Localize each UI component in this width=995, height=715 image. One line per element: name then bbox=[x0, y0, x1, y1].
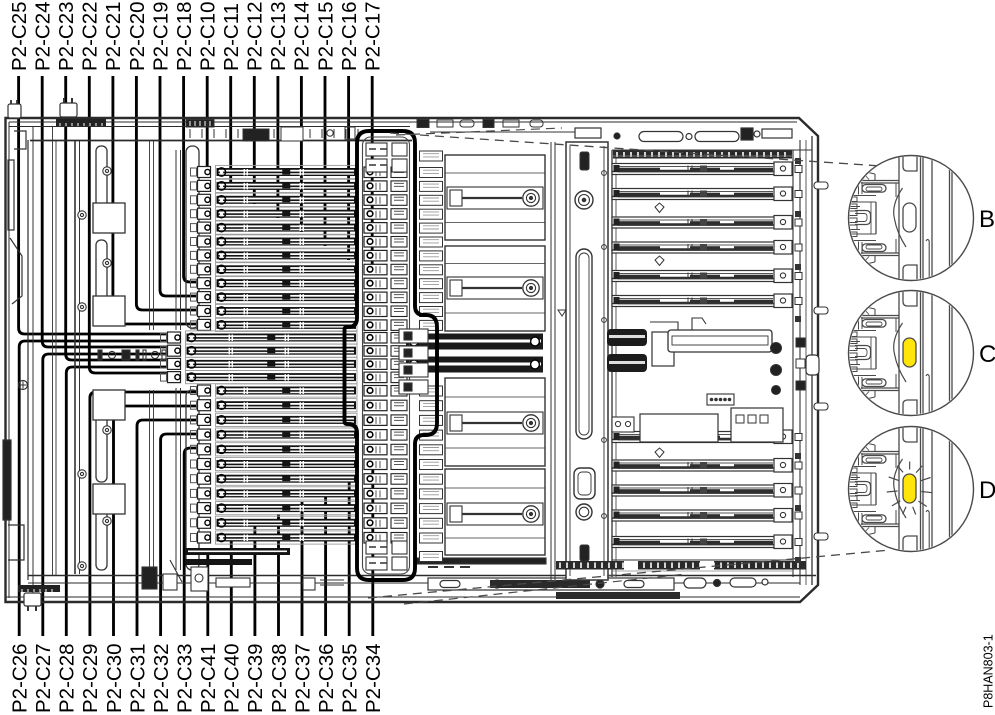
svg-text:P2-C10: P2-C10 bbox=[197, 1, 220, 71]
svg-text:P2-C32: P2-C32 bbox=[150, 643, 173, 713]
svg-text:P2-C20: P2-C20 bbox=[126, 1, 149, 71]
svg-text:P2-C15: P2-C15 bbox=[314, 1, 337, 71]
svg-text:P2-C11: P2-C11 bbox=[220, 3, 243, 71]
svg-text:P2-C34: P2-C34 bbox=[362, 643, 385, 713]
svg-text:B: B bbox=[979, 206, 995, 233]
svg-text:P2-C21: P2-C21 bbox=[102, 1, 125, 71]
svg-text:C: C bbox=[979, 341, 995, 368]
svg-text:P2-C22: P2-C22 bbox=[79, 1, 102, 71]
svg-text:D: D bbox=[979, 477, 995, 504]
svg-text:P2-C38: P2-C38 bbox=[268, 643, 291, 713]
svg-text:P2-C25: P2-C25 bbox=[8, 1, 31, 71]
svg-text:P2-C39: P2-C39 bbox=[244, 643, 267, 713]
svg-text:P2-C35: P2-C35 bbox=[339, 643, 362, 713]
svg-text:P2-C13: P2-C13 bbox=[267, 1, 290, 71]
svg-text:P2-C12: P2-C12 bbox=[244, 1, 267, 71]
svg-text:P2-C37: P2-C37 bbox=[291, 643, 314, 713]
svg-text:P2-C36: P2-C36 bbox=[315, 643, 338, 713]
svg-text:P2-C29: P2-C29 bbox=[79, 643, 102, 713]
svg-text:P2-C24: P2-C24 bbox=[32, 1, 55, 71]
svg-text:P2-C27: P2-C27 bbox=[32, 643, 55, 713]
svg-text:P8HAN803-1: P8HAN803-1 bbox=[982, 634, 995, 708]
svg-text:P2-C31: P2-C31 bbox=[126, 643, 149, 713]
svg-text:P2-C17: P2-C17 bbox=[362, 1, 385, 71]
svg-text:P2-C26: P2-C26 bbox=[9, 643, 32, 713]
svg-text:P2-C14: P2-C14 bbox=[291, 1, 314, 71]
svg-text:P2-C18: P2-C18 bbox=[173, 1, 196, 71]
svg-text:P2-C40: P2-C40 bbox=[221, 643, 244, 713]
svg-text:P2-C41: P2-C41 bbox=[197, 643, 220, 713]
svg-text:P2-C19: P2-C19 bbox=[149, 1, 172, 71]
svg-text:P2-C23: P2-C23 bbox=[55, 1, 78, 71]
svg-text:P2-C30: P2-C30 bbox=[103, 643, 126, 713]
svg-text:P2-C33: P2-C33 bbox=[174, 643, 197, 713]
svg-text:P2-C16: P2-C16 bbox=[338, 1, 361, 71]
svg-text:P2-C28: P2-C28 bbox=[56, 643, 79, 713]
